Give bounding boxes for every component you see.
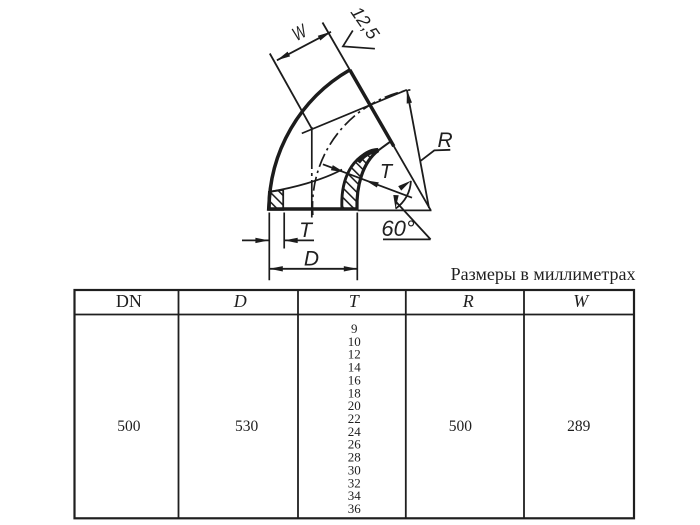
svg-text:500: 500 xyxy=(117,418,141,435)
svg-text:500: 500 xyxy=(449,418,473,435)
svg-text:60°: 60° xyxy=(381,216,414,241)
svg-text:R: R xyxy=(438,129,453,152)
svg-text:T: T xyxy=(299,219,314,242)
svg-text:W: W xyxy=(573,291,590,311)
svg-text:530: 530 xyxy=(235,418,259,435)
svg-text:36: 36 xyxy=(348,501,362,516)
svg-text:DN: DN xyxy=(116,291,142,311)
svg-text:R: R xyxy=(462,291,474,311)
svg-text:D: D xyxy=(304,248,319,271)
svg-text:Размеры в миллиметрах: Размеры в миллиметрах xyxy=(451,264,636,284)
svg-text:W: W xyxy=(289,20,312,45)
svg-text:12,5: 12,5 xyxy=(347,3,384,44)
svg-text:T: T xyxy=(349,291,361,311)
svg-text:289: 289 xyxy=(567,418,591,435)
svg-text:D: D xyxy=(233,291,247,311)
svg-text:T: T xyxy=(380,161,394,183)
